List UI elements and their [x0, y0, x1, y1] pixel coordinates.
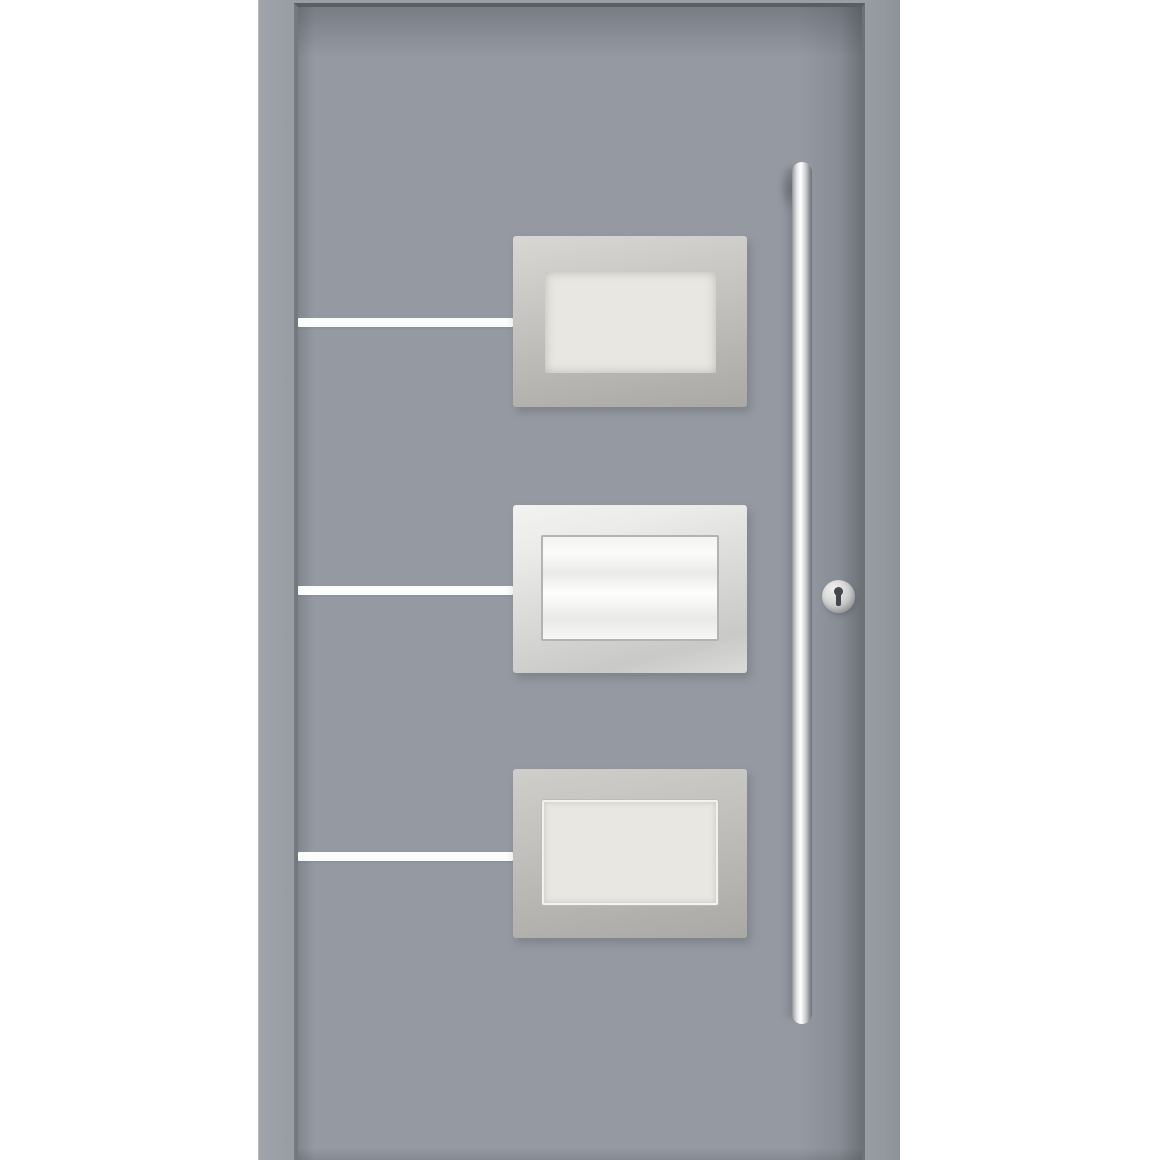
keyhole-slot-icon	[836, 593, 841, 606]
glass-panel-top	[513, 236, 747, 407]
glass-pane-top	[545, 272, 716, 373]
accent-line-top	[298, 318, 513, 327]
accent-line-middle	[298, 586, 513, 595]
pull-handle	[792, 162, 812, 1024]
accent-line-bottom	[298, 852, 513, 861]
glass-panel-middle	[513, 505, 747, 673]
lock-cylinder	[822, 580, 855, 613]
glass-pane-middle	[541, 535, 719, 641]
glass-pane-bottom	[542, 800, 718, 905]
glass-panel-bottom	[513, 769, 747, 938]
door-product-photo	[0, 0, 1160, 1160]
